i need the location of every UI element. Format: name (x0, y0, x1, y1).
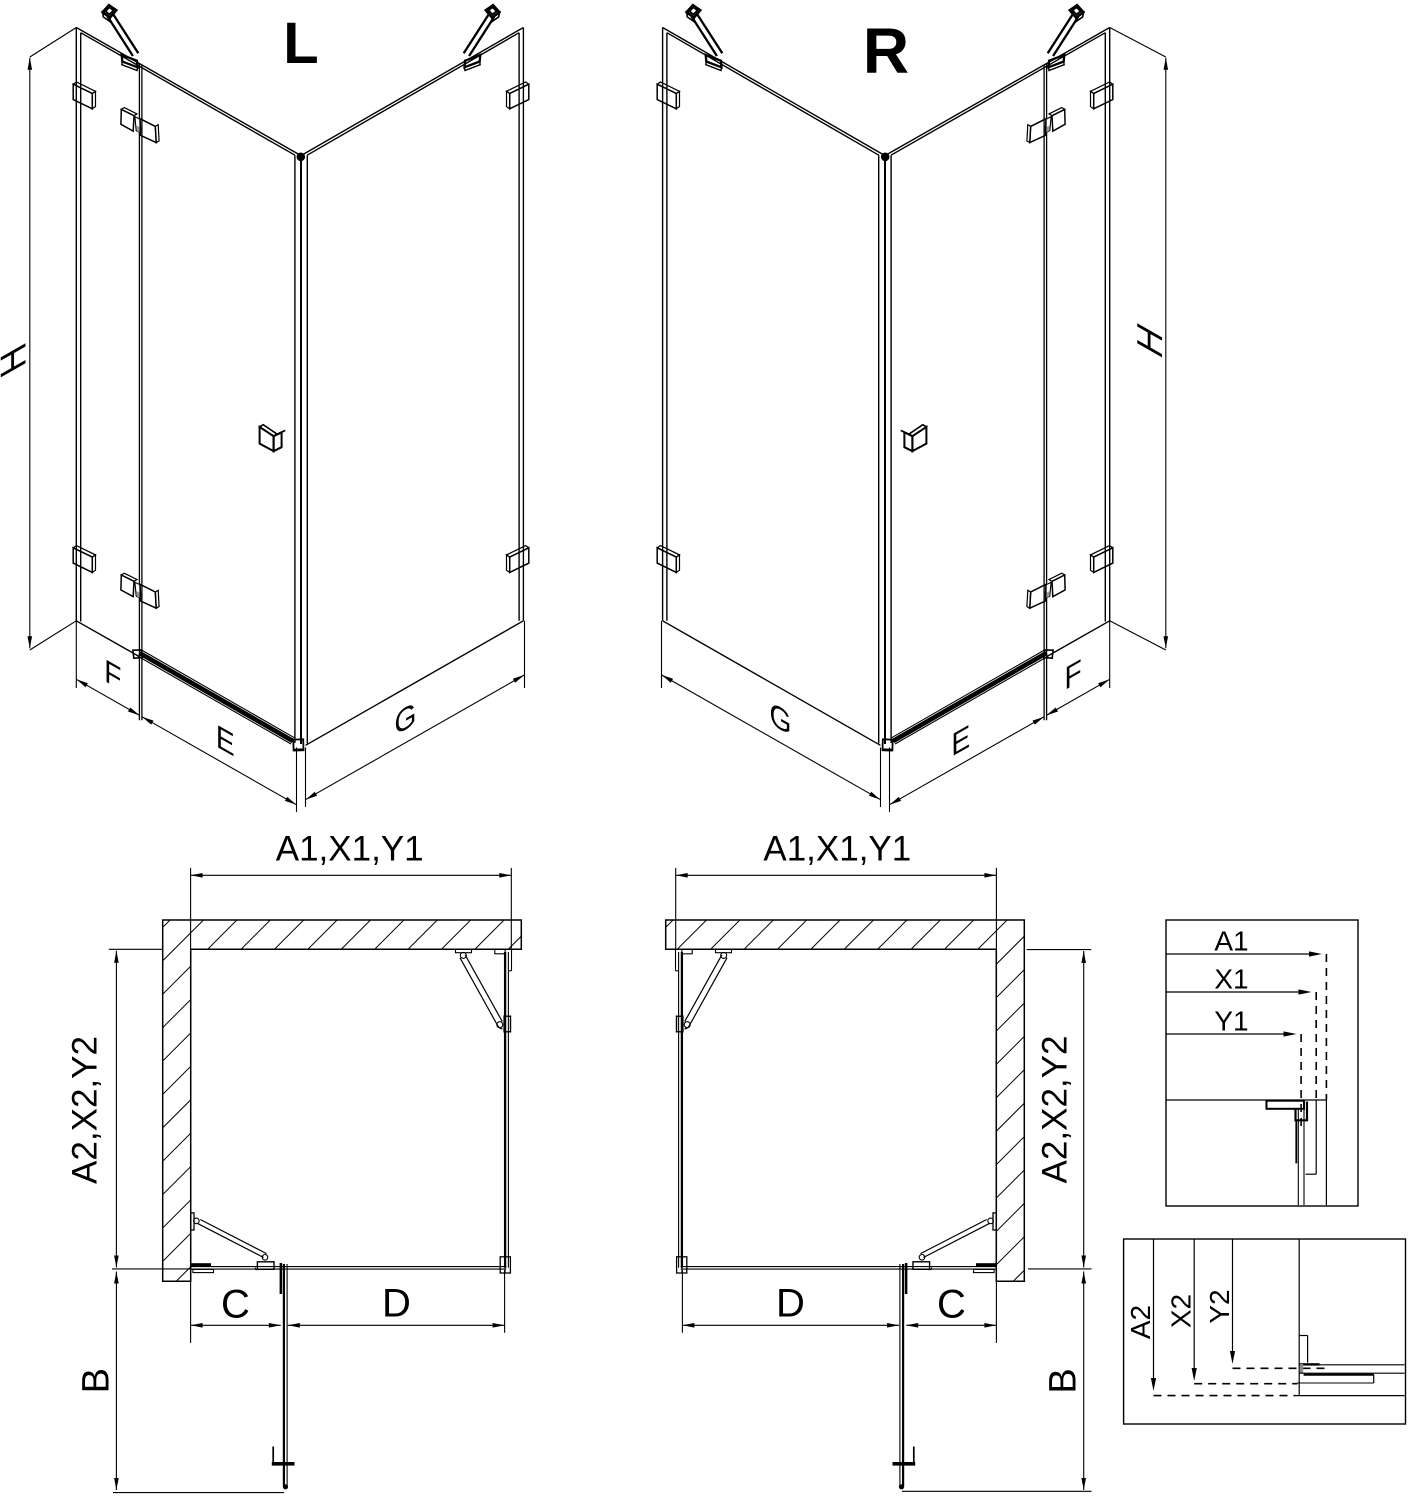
svg-text:X2: X2 (1166, 1294, 1197, 1328)
svg-text:Y2: Y2 (1204, 1289, 1235, 1323)
svg-text:A2,X2,Y2: A2,X2,Y2 (1036, 1036, 1075, 1184)
svg-text:A1,X1,Y1: A1,X1,Y1 (763, 829, 911, 868)
svg-text:D: D (776, 1282, 805, 1326)
svg-text:L: L (283, 11, 318, 76)
svg-text:A2,X2,Y2: A2,X2,Y2 (66, 1036, 105, 1184)
svg-text:A1,X1,Y1: A1,X1,Y1 (276, 829, 424, 868)
svg-text:R: R (863, 15, 909, 87)
svg-text:B: B (1043, 1368, 1085, 1393)
svg-text:A2: A2 (1125, 1305, 1156, 1339)
svg-text:D: D (382, 1282, 411, 1326)
svg-text:B: B (76, 1368, 118, 1393)
svg-text:X1: X1 (1214, 964, 1248, 995)
svg-text:Y1: Y1 (1214, 1006, 1248, 1037)
svg-text:C: C (937, 1283, 966, 1327)
svg-text:A1: A1 (1214, 926, 1248, 957)
svg-text:C: C (221, 1283, 250, 1327)
